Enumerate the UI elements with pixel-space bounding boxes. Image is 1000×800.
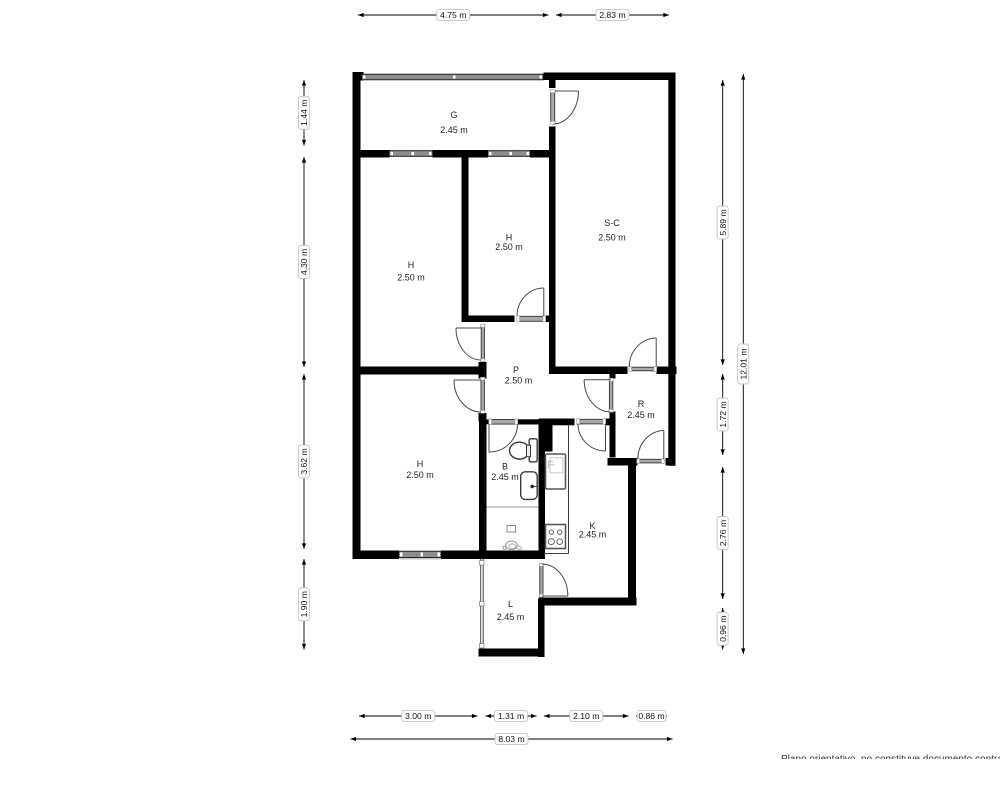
svg-text:2.50 m: 2.50 m <box>406 470 434 480</box>
svg-text:12.01 m: 12.01 m <box>738 348 748 379</box>
svg-text:2.50 m: 2.50 m <box>495 242 523 252</box>
svg-text:2.45 m: 2.45 m <box>627 410 655 420</box>
svg-text:S-C: S-C <box>604 218 620 228</box>
svg-text:2.10 m: 2.10 m <box>573 711 599 721</box>
svg-text:R: R <box>638 399 645 409</box>
svg-text:1.31 m: 1.31 m <box>498 711 524 721</box>
svg-text:2.50 m: 2.50 m <box>598 233 626 243</box>
svg-text:4.75 m: 4.75 m <box>440 10 466 20</box>
svg-text:1.44 m: 1.44 m <box>299 100 309 126</box>
svg-text:H: H <box>408 260 415 270</box>
svg-text:2.50 m: 2.50 m <box>505 376 533 386</box>
svg-text:2.50 m: 2.50 m <box>397 273 425 283</box>
svg-text:3.62 m: 3.62 m <box>299 448 309 474</box>
svg-text:L: L <box>508 599 513 609</box>
svg-text:3.00 m: 3.00 m <box>405 711 431 721</box>
svg-text:4.30 m: 4.30 m <box>299 249 309 275</box>
svg-text:B: B <box>502 462 508 472</box>
svg-text:2.45 m: 2.45 m <box>440 125 468 135</box>
svg-text:2.83 m: 2.83 m <box>599 10 625 20</box>
svg-text:0.96 m: 0.96 m <box>718 616 728 642</box>
svg-text:5.89 m: 5.89 m <box>718 209 728 235</box>
svg-text:2.45 m: 2.45 m <box>497 612 525 622</box>
svg-text:H: H <box>506 233 513 243</box>
svg-text:1.72 m: 1.72 m <box>718 401 728 427</box>
svg-text:2.76 m: 2.76 m <box>718 520 728 546</box>
svg-text:P: P <box>513 365 519 375</box>
svg-text:H: H <box>417 459 424 469</box>
svg-text:2.45 m: 2.45 m <box>491 472 519 482</box>
svg-text:2.45 m: 2.45 m <box>579 530 607 540</box>
svg-text:1.90 m: 1.90 m <box>299 591 309 617</box>
svg-text:8.03 m: 8.03 m <box>498 734 524 744</box>
svg-text:0.86 m: 0.86 m <box>638 711 664 721</box>
svg-text:G: G <box>450 110 457 120</box>
